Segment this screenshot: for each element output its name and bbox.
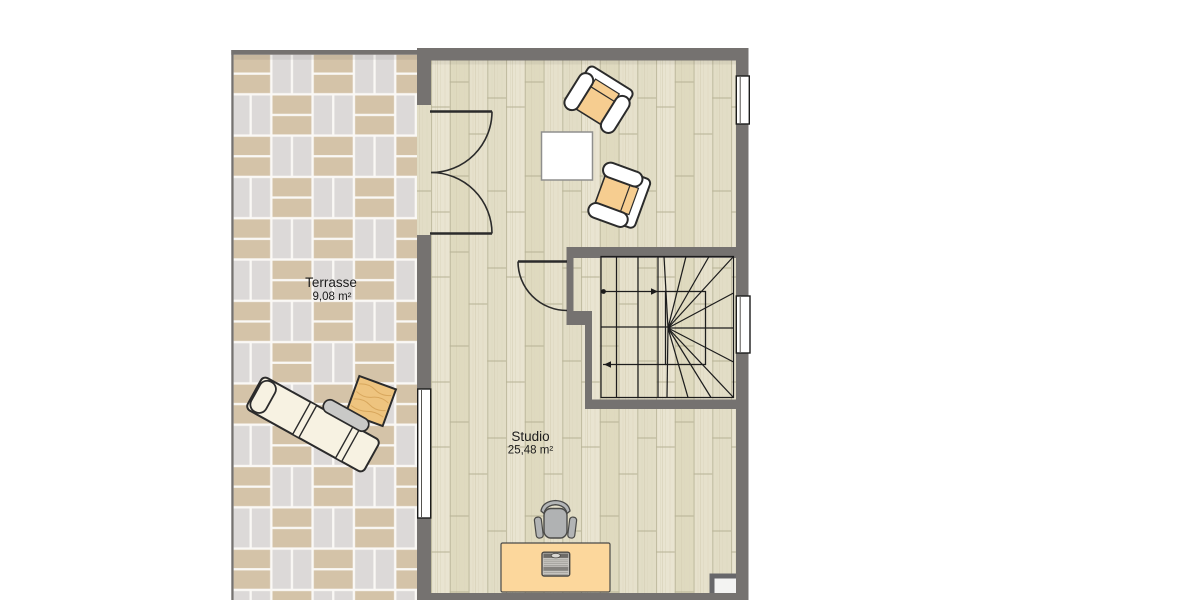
svg-text:25,48 m²: 25,48 m² (508, 445, 554, 457)
svg-text:Terrasse: Terrasse (305, 275, 357, 290)
svg-text:Studio: Studio (511, 429, 549, 444)
svg-text:9,08 m²: 9,08 m² (313, 291, 352, 303)
